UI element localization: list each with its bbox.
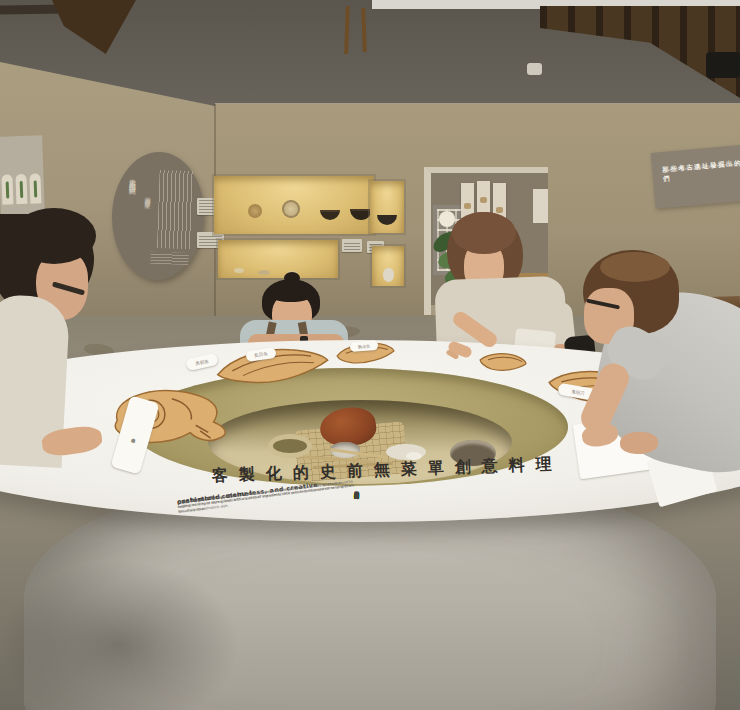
species-label-pill: 鸚哥魚 xyxy=(350,340,379,352)
species-label: 水鹿 xyxy=(133,434,138,435)
plant-sprig-icon xyxy=(6,181,10,198)
exhibit-room-photo: 史前人類也可以很講究 溫潤的餐桌美學 xyxy=(0,0,740,710)
plaque-title-column: 史前人類也可以很講究 xyxy=(124,173,137,259)
display-niche-lower xyxy=(218,240,338,278)
species-label: 白鼻心 xyxy=(133,434,138,435)
clay-bowl xyxy=(268,434,312,458)
pottery-fragment xyxy=(258,270,270,275)
text-panel xyxy=(533,189,548,223)
wood-fish-cutout-icon xyxy=(477,348,529,376)
pottery-bowl xyxy=(350,209,372,220)
visitor1-hair-fringe xyxy=(12,208,96,264)
menu-column: 檳榔芋泥 xyxy=(354,487,360,489)
pottery-plate xyxy=(282,200,300,218)
plaque-footnote xyxy=(150,252,188,265)
plaque-body-text xyxy=(157,170,194,249)
pottery-vase xyxy=(383,268,394,282)
visitor2-hair-fringe xyxy=(268,286,314,302)
pottery-bowl xyxy=(320,210,340,220)
right-wall-text-band: 那些考古遺址發掘出的陶器們 What archaeologists discov… xyxy=(651,143,740,208)
pottery-bowl xyxy=(377,215,397,225)
display-niche-small xyxy=(370,181,404,233)
round-display-disc xyxy=(439,211,455,227)
arch-illustration xyxy=(1,174,13,204)
arch-illustration xyxy=(15,174,27,204)
species-label: 山羌 xyxy=(133,434,138,435)
visitor4-hair-highlight xyxy=(600,252,670,282)
pottery-sherd xyxy=(248,204,262,218)
plant-sprig-icon xyxy=(34,180,38,197)
visitor3-hair-fringe xyxy=(452,212,516,254)
arch-illustration xyxy=(29,173,41,203)
speaker-box xyxy=(706,52,740,78)
plant-sprig-icon xyxy=(20,181,24,198)
display-niche-small xyxy=(372,246,404,286)
wall-label xyxy=(342,239,362,252)
security-camera xyxy=(527,63,542,75)
pottery-fragment xyxy=(234,268,244,273)
plaque-subtitle-column: 溫潤的餐桌美學 xyxy=(141,191,152,251)
display-niche-main xyxy=(214,176,374,234)
